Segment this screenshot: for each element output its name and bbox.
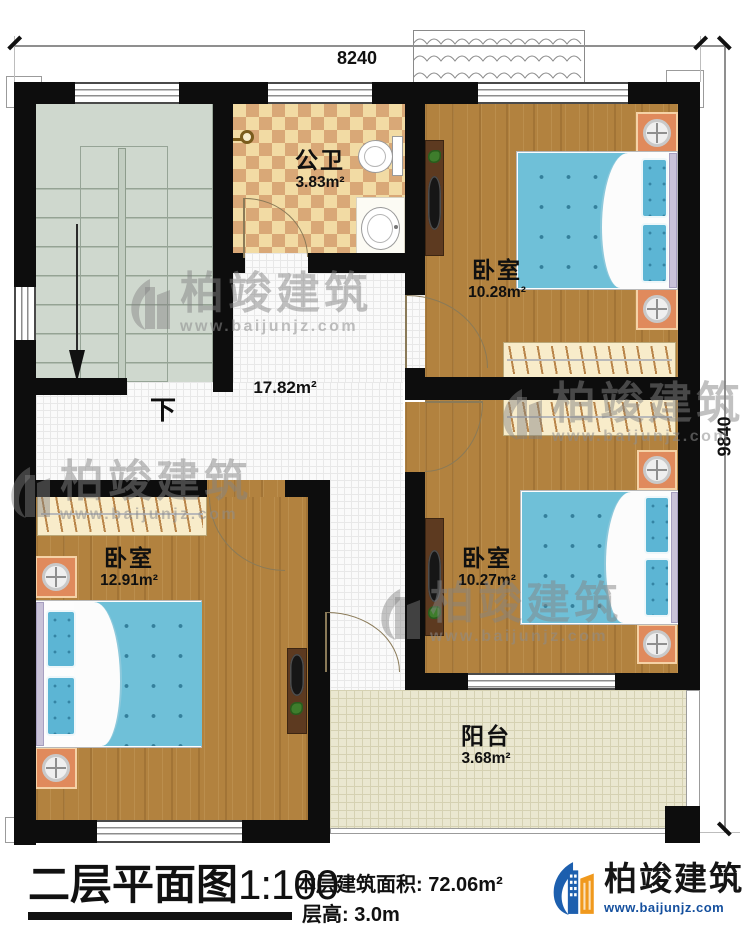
wall-segment <box>14 82 36 287</box>
nightstand <box>637 450 677 490</box>
wall-segment <box>615 673 678 690</box>
window <box>14 287 36 340</box>
dimension-line-top <box>14 45 725 47</box>
floor-height-text: 层高: 3.0m <box>302 898 400 927</box>
roof-tiles <box>413 30 585 83</box>
doorway <box>207 480 285 497</box>
room-label-bathroom: 公卫 3.83m² <box>268 148 372 191</box>
brand-name: 柏竣建筑 <box>604 862 744 895</box>
faucet-icon <box>394 225 398 229</box>
headboard <box>36 602 44 746</box>
dimension-label-top: 8240 <box>317 48 397 69</box>
lamp-icon <box>643 630 671 658</box>
lamp-icon <box>643 295 671 323</box>
pillow <box>641 158 668 218</box>
lamp-icon <box>42 563 70 591</box>
nightstand <box>636 112 678 154</box>
wall-segment <box>405 104 425 295</box>
monitor-icon <box>428 176 441 230</box>
wall-segment <box>213 253 245 273</box>
light-fixture-icon <box>240 130 254 144</box>
wall-segment <box>179 82 268 104</box>
pillow <box>644 496 670 554</box>
wall-segment <box>285 480 330 497</box>
nightstand <box>637 624 677 664</box>
stairs-down-label: 下 <box>150 390 186 427</box>
lamp-icon <box>643 119 671 147</box>
plant-icon <box>428 606 441 619</box>
floor-plan-sheet: 8240 9840 <box>0 0 750 931</box>
wall-segment <box>14 340 36 845</box>
wall-segment <box>678 82 700 690</box>
window <box>268 82 372 104</box>
room-label-bedroom-left: 卧室 12.91m² <box>68 546 190 589</box>
pillow <box>46 610 76 668</box>
brand-logo-icon <box>548 860 596 916</box>
toilet-tank <box>392 136 403 176</box>
pillow <box>46 676 76 736</box>
room-label-bedroom-right: 卧室 10.27m² <box>426 546 548 589</box>
wardrobe <box>503 398 676 436</box>
lamp-icon <box>42 754 70 782</box>
floor-area-text: 本层建筑面积: 72.06m² <box>296 868 503 897</box>
balcony-corner-post <box>665 806 700 843</box>
window <box>75 82 179 104</box>
lamp-icon <box>643 456 671 484</box>
dimension-label-right: 9840 <box>715 400 736 474</box>
headboard <box>671 492 678 623</box>
wardrobe <box>503 342 676 378</box>
nightstand <box>636 288 678 330</box>
plan-title: 二层平面图1:100 <box>28 864 338 906</box>
headboard <box>669 153 677 288</box>
hall-floor <box>233 273 405 382</box>
sink-basin-inner <box>367 214 393 243</box>
doorway <box>330 673 405 690</box>
pillow <box>641 223 668 283</box>
window <box>468 673 615 690</box>
plant-icon <box>428 150 441 163</box>
wall-segment <box>14 378 127 395</box>
brand-website: www.baijunjz.com <box>604 900 744 915</box>
pillow <box>644 558 670 617</box>
wall-segment <box>372 82 478 104</box>
extension-line <box>700 832 740 833</box>
wall-segment <box>308 253 405 273</box>
brand-block: 柏竣建筑 www.baijunjz.com <box>548 860 744 916</box>
window <box>478 82 628 104</box>
room-label-hall: 17.82m² <box>241 378 329 397</box>
nightstand <box>35 747 77 789</box>
hall-floor <box>36 382 403 480</box>
room-label-balcony: 阳台 3.68m² <box>425 724 547 767</box>
window <box>97 820 242 843</box>
wardrobe <box>37 492 207 536</box>
stair-arrow-stem <box>76 224 78 354</box>
plant-icon <box>290 702 303 715</box>
title-underline <box>28 912 292 920</box>
room-label-bedroom-top: 卧室 10.28m² <box>436 258 558 301</box>
doorway <box>405 402 425 472</box>
wall-segment <box>405 472 425 673</box>
wall-segment <box>405 673 468 690</box>
wall-segment <box>405 377 678 400</box>
monitor-icon <box>290 654 304 696</box>
stair-center-rail <box>118 148 126 382</box>
wall-segment <box>14 820 97 843</box>
balcony-railing-bottom <box>330 828 700 834</box>
wall-segment <box>14 480 207 497</box>
wall-segment <box>213 104 233 392</box>
